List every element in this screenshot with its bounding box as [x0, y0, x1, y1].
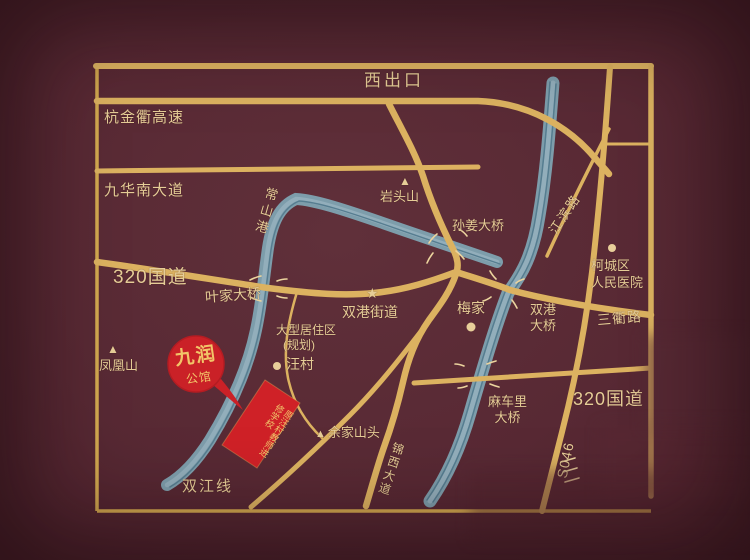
shuanggang-line2: 大桥: [530, 318, 556, 334]
residential-line2: (规划): [276, 338, 336, 353]
bridge-label-sunjiang: 孙姜大桥: [452, 219, 504, 234]
road-label-jiuhua-south: 九华南大道: [104, 182, 184, 199]
road-label-west-exit: 西出口: [364, 71, 424, 91]
macheli-line1: 麻车里: [488, 394, 527, 410]
meijia-dot-icon: [467, 323, 476, 332]
road-label-g320-right: 320国道: [573, 389, 644, 410]
macheli-line2: 大桥: [488, 410, 527, 426]
yujia-text: 余家山头: [328, 425, 380, 440]
road-e-horizontal: [414, 368, 651, 383]
place-label-shuanggang-subdistrict: 双港街道: [342, 304, 398, 320]
property-name-label: 九润 公馆: [165, 337, 229, 390]
place-label-fenghuang-mountain: 凤凰山: [99, 359, 138, 374]
road-label-g320-left: 320国道: [113, 267, 188, 289]
shuanggang-line1: 双港: [530, 302, 556, 318]
mountain-icon: ▲: [107, 342, 119, 356]
place-label-yujia-hilltop: ▲余家山头: [315, 426, 380, 441]
hospital-line2: 人民医院: [591, 274, 643, 291]
hospital-dot-icon: [608, 244, 616, 252]
place-label-hospital: 柯城区 人民医院: [591, 257, 643, 291]
hospital-line1: 柯城区: [591, 257, 643, 274]
wangcun-dot-icon: [273, 362, 281, 370]
place-label-residential: 大型居住区 (规划): [276, 323, 336, 353]
place-label-wangcun: 汪村: [286, 356, 314, 372]
bridge-label-shuanggang: 双港 大桥: [530, 302, 556, 334]
bridge-label-macheli: 麻车里 大桥: [488, 394, 527, 426]
road-label-hangjinqu: 杭金衢高速: [104, 109, 184, 126]
residential-line1: 大型居住区: [276, 323, 336, 338]
place-label-meijia: 梅家: [457, 300, 485, 316]
road-label-shuangjiang: 双江线: [182, 478, 233, 495]
place-label-yantou-mountain: 岩头山: [380, 190, 419, 205]
mountain-icon: ▲: [399, 174, 411, 188]
location-map: 西出口 杭金衢高速 九华南大道 320国道 叶家大桥 常山港 ▲ 岩头山 孙姜大…: [0, 0, 750, 560]
mountain-icon: ▲: [315, 428, 326, 440]
star-icon: ★: [366, 285, 379, 302]
